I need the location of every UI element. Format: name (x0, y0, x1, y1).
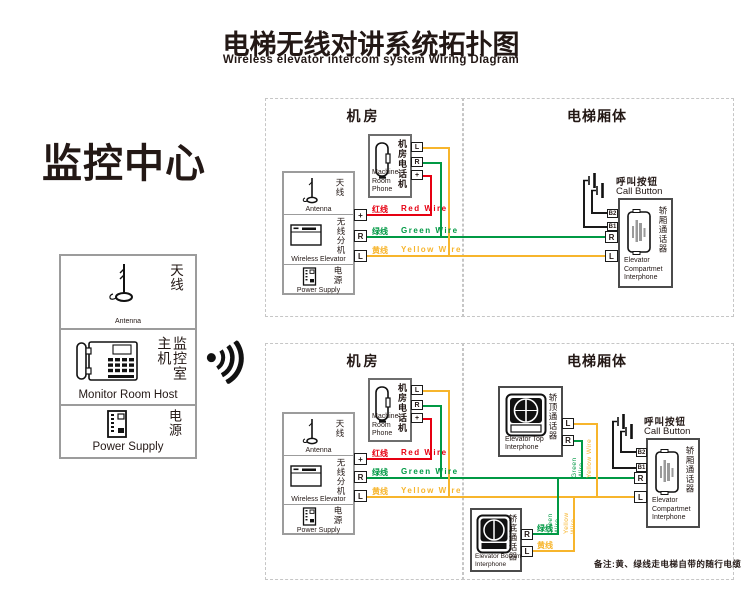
top-interphone-terminal-b1: B1 (607, 222, 618, 231)
yellow-wire (574, 423, 598, 425)
bottom-station-antenna-en: Antenna (284, 447, 353, 454)
top-station-power-row: 电源 Power Supply (284, 264, 353, 294)
top-station-terminal-l: L (354, 250, 367, 262)
zone-top-car-body (462, 98, 734, 317)
green-wire-label: 绿线Green Wire (372, 467, 459, 478)
green-wire (423, 162, 442, 164)
green-wire (423, 405, 442, 407)
bottom-station-antenna-zh: 天线 (334, 419, 344, 440)
top-station-power-en: Power Supply (284, 287, 353, 294)
page-subtitle: Wireless elevator intercom system Wiring… (171, 54, 571, 66)
top-station-extension-en: Wireless Elevator (284, 256, 353, 263)
bottom-station-terminal-l: L (354, 490, 367, 502)
monitor-center-box: 天线 Antenna 监控室主机 Monitor Room Host (59, 254, 197, 459)
red-wire-label: 红线Red Wire (372, 448, 448, 459)
red-wire (423, 175, 432, 177)
yellow-wire-vertical-label: Yellow Wire (586, 438, 593, 478)
top-machine-room-header: 机房 (265, 106, 462, 126)
top-interphone-label-en: Elevator Top Interphone (505, 436, 553, 454)
bottom-wireless-station-box: 天线 Antenna 无线分机 Wireless Elevator 电源 Pow… (282, 412, 355, 535)
wireless-extension-icon (289, 222, 323, 248)
bottom-compartment-interphone-box: 轿厢通话器 Elevator Compartmet Interphone (646, 438, 700, 528)
elevator-bottom-terminal-r: R (521, 529, 533, 540)
power-label-en: Power Supply (61, 441, 195, 453)
bottom-phone-terminal-l: L (411, 385, 423, 395)
top-phone-terminal-l: L (411, 142, 423, 152)
yellow-wire (448, 390, 450, 497)
bottom-car-body-header: 电梯厢体 (462, 351, 732, 371)
call-button-wire (583, 226, 608, 228)
red-wire (423, 418, 432, 420)
top-car-body-header: 电梯厢体 (462, 106, 732, 126)
bottom-station-antenna-row: 天线 Antenna (284, 414, 353, 455)
yellow-wire-label: 黄线Yellow Wire (372, 486, 462, 497)
bottom-compartment-terminal-l: L (634, 491, 647, 503)
call-button-icon (591, 183, 607, 198)
bottom-station-extension-zh: 无线分机 (335, 458, 345, 500)
wireless-signal-icon (198, 334, 256, 387)
yellow-wire-mini-label: 黄线 (537, 540, 553, 551)
interphone-icon (653, 448, 681, 496)
bottom-compartment-terminal-r: R (634, 472, 647, 484)
interphone-icon (625, 208, 653, 256)
elevator-bottom-terminal-l: L (521, 546, 533, 557)
bottom-compartment-label-en: Elevator Compartmet Interphone (652, 497, 698, 523)
top-station-terminal-plus: + (354, 209, 367, 221)
yellow-wire-label: 黄线Yellow Wire (372, 245, 462, 256)
yellow-wire (423, 147, 450, 149)
antenna-icon (301, 418, 321, 448)
monitor-host-label-en: Monitor Room Host (61, 389, 195, 401)
top-call-button-label-en: Call Button (616, 186, 662, 197)
yellow-wire-vertical-label: Yellow Wire (563, 498, 577, 534)
monitor-center-title: 监控中心 (42, 131, 206, 189)
bottom-station-power-row: 电源 Power Supply (284, 504, 353, 535)
monitor-host-label-zh: 监控室主机 (156, 336, 187, 383)
power-supply-icon (105, 409, 129, 439)
top-station-antenna-row: 天线 Antenna (284, 173, 353, 214)
elevator-bottom-interphone-box: 轿底通话器 Elevator Bottom Interphone (470, 508, 522, 572)
bottom-station-power-zh: 电源 (332, 506, 342, 526)
bottom-compartment-label-zh: 轿厢通话器 (684, 446, 694, 498)
call-button-wire (591, 212, 608, 214)
power-supply-icon (302, 267, 317, 286)
bottom-compartment-terminal-b1: B1 (636, 463, 647, 472)
top-interphone-terminal-r: R (605, 231, 618, 243)
monitor-center-power-row: 电源 Power Supply (61, 404, 195, 455)
antenna-icon (107, 262, 137, 308)
power-label-zh: 电源 (166, 409, 181, 439)
bottom-station-extension-row: 无线分机 Wireless Elevator (284, 455, 353, 504)
green-wire-label: 绿线Green Wire (372, 226, 459, 237)
top-station-extension-row: 无线分机 Wireless Elevator (284, 214, 353, 264)
yellow-wire (448, 147, 450, 256)
call-button-icon (620, 424, 636, 439)
monitor-host-phone-icon (75, 338, 141, 384)
bottom-station-terminal-plus: + (354, 453, 367, 465)
bottom-machine-room-phone-box: 机房电话机 Machine Room Phone (368, 378, 412, 442)
top-station-antenna-en: Antenna (284, 206, 353, 213)
elevator-top-terminal-l: L (562, 418, 574, 429)
antenna-icon (301, 177, 321, 207)
speaker-icon (505, 393, 547, 437)
top-phone-label-en: Machine Room Phone (372, 169, 412, 195)
bottom-call-button-label-en: Call Button (644, 426, 690, 437)
wiring-diagram-page: 电梯无线对讲系统拓扑图 Wireless elevator intercom s… (0, 0, 750, 589)
bottom-compartment-terminal-b2: B2 (636, 448, 647, 457)
red-wire-label: 红线Red Wire (372, 204, 448, 215)
top-machine-room-phone-box: 机房电话机 Machine Room Phone (368, 134, 412, 198)
top-compartment-label-en: Elevator Compartmet Interphone (624, 257, 670, 283)
bottom-station-terminal-r: R (354, 471, 367, 483)
top-wireless-station-box: 天线 Antenna 无线分机 Wireless Elevator 电源 Pow… (282, 171, 355, 295)
footer-note: 备注:黄、绿线走电梯自带的随行电缆 (594, 558, 741, 570)
bottom-phone-terminal-plus: + (411, 413, 423, 423)
top-interphone-terminal-l: L (605, 250, 618, 262)
top-phone-terminal-r: R (411, 157, 423, 167)
wireless-extension-icon (289, 463, 323, 489)
top-interphone-terminal-b2: B2 (607, 209, 618, 218)
bottom-station-power-en: Power Supply (284, 527, 353, 534)
yellow-wire (596, 423, 598, 498)
monitor-center-host-row: 监控室主机 Monitor Room Host (61, 328, 195, 404)
top-station-antenna-zh: 天线 (334, 178, 344, 199)
green-wire-vertical-label: Green Wire (547, 498, 561, 534)
call-button-wire (612, 467, 638, 469)
antenna-label-zh: 天线 (168, 263, 183, 297)
power-supply-icon (302, 507, 317, 526)
elevator-top-terminal-r: R (562, 435, 574, 446)
antenna-label-en: Antenna (61, 318, 195, 325)
bottom-phone-label-en: Machine Room Phone (372, 413, 412, 439)
bottom-machine-room-header: 机房 (265, 351, 462, 371)
top-station-power-zh: 电源 (332, 266, 342, 286)
monitor-center-antenna-row: 天线 Antenna (61, 256, 195, 328)
elevator-top-interphone-box: 轿顶通话器 Elevator Top Interphone (498, 386, 563, 457)
top-station-terminal-r: R (354, 230, 367, 242)
bottom-phone-terminal-r: R (411, 400, 423, 410)
top-station-extension-zh: 无线分机 (335, 217, 345, 259)
yellow-wire (423, 390, 450, 392)
top-compartment-label-zh: 轿厢通话器 (657, 206, 667, 258)
top-phone-terminal-plus: + (411, 170, 423, 180)
bottom-station-extension-en: Wireless Elevator (284, 496, 353, 503)
top-compartment-interphone-box: 轿厢通话器 Elevator Compartmet Interphone (618, 198, 673, 288)
bottom-interphone-label-en: Elevator Bottom Interphone (475, 553, 522, 569)
